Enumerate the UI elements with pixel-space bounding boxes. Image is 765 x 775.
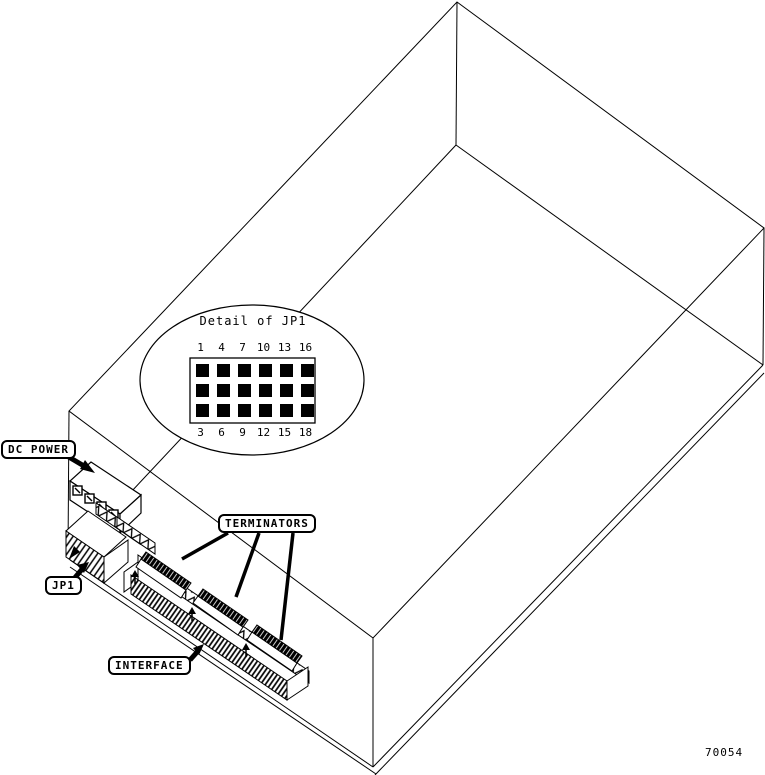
enclosure-top-face bbox=[69, 2, 764, 638]
label-dc-power: DC POWER bbox=[1, 440, 76, 459]
pin-number: 16 bbox=[295, 341, 316, 354]
figure-number: 70054 bbox=[705, 746, 743, 759]
figure-drive-connector-diagram: DC POWER JP1 TERMINATORS INTERFACE Detai… bbox=[0, 0, 765, 775]
label-terminators: TERMINATORS bbox=[218, 514, 316, 533]
jp1-pin-numbers-top: 1 4 7 10 13 16 bbox=[190, 341, 316, 354]
pin-number: 3 bbox=[190, 426, 211, 439]
pin-number: 6 bbox=[211, 426, 232, 439]
enclosure-bottom-right-rim bbox=[373, 365, 763, 767]
label-interface: INTERFACE bbox=[108, 656, 191, 675]
pin-number: 13 bbox=[274, 341, 295, 354]
pin-number: 9 bbox=[232, 426, 253, 439]
pin-number: 10 bbox=[253, 341, 274, 354]
enclosure-right-edge bbox=[763, 228, 764, 365]
jp1-detail-title: Detail of JP1 bbox=[190, 314, 316, 328]
enclosure-inner-right-edge bbox=[456, 145, 763, 365]
pin-number: 1 bbox=[190, 341, 211, 354]
pin-number: 4 bbox=[211, 341, 232, 354]
terminators-leader-1 bbox=[182, 533, 228, 559]
jp1-pin-numbers-bottom: 3 6 9 12 15 18 bbox=[190, 426, 316, 439]
terminators-leader-2 bbox=[236, 533, 259, 597]
label-jp1: JP1 bbox=[45, 576, 82, 595]
pin-number: 12 bbox=[253, 426, 274, 439]
pin-number: 15 bbox=[274, 426, 295, 439]
pin-number: 18 bbox=[295, 426, 316, 439]
terminators-leader-3 bbox=[281, 533, 293, 640]
pin-number: 7 bbox=[232, 341, 253, 354]
enclosure-back-edge bbox=[456, 2, 457, 145]
